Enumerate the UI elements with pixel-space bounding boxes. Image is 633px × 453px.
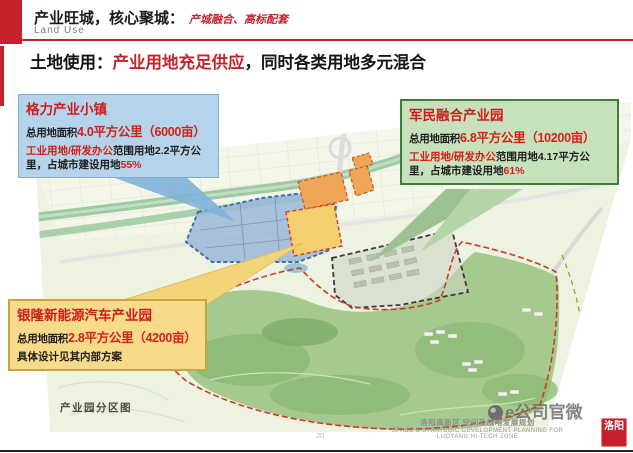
area-line: 总用地面积4.0平方公里（6000亩） xyxy=(26,121,211,143)
callout-junmin-park: 军民融合产业园 总用地面积6.8平方公里（10200亩） 工业用地/研发办公范围… xyxy=(400,99,619,185)
note-line: 具体设计见其内部方案 xyxy=(17,350,198,364)
callout-geli-industry-town: 格力产业小镇 总用地面积4.0平方公里（6000亩） 工业用地/研发办公范围用地… xyxy=(18,94,219,178)
page-number: 20 xyxy=(316,431,324,440)
area-line: 总用地面积2.8平方公里（4200亩） xyxy=(17,327,198,349)
bottom-divider xyxy=(0,450,633,452)
detail-line: 工业用地/研发办公范围用地4.17平方公里，占城市建设用地61% xyxy=(409,150,610,178)
area-line: 总用地面积6.8平方公里（10200亩） xyxy=(409,127,610,149)
camera-icon xyxy=(488,405,503,420)
callout-title: 银隆新能源汽车产业园 xyxy=(17,307,198,325)
watermark: e公司官微 xyxy=(488,398,582,423)
luoyang-seal-logo: 洛阳 xyxy=(601,418,627,447)
slide: 产业旺城，核心聚城：产城融合、高标配套 Land Use 土地使用：产业用地充足… xyxy=(0,0,633,453)
detail-line: 工业用地/研发办公范围用地2.2平方公里，占城市建设用地55% xyxy=(26,144,211,172)
watermark-text: e公司官微 xyxy=(505,403,582,422)
callout-yinlong-park: 银隆新能源汽车产业园 总用地面积2.8平方公里（4200亩） 具体设计见其内部方… xyxy=(8,299,207,371)
credit-english-2: LUOYANG HI-TECH ZONE xyxy=(355,434,600,440)
planning-map xyxy=(0,0,633,453)
callout-title: 格力产业小镇 xyxy=(26,101,211,119)
callout-title: 军民融合产业园 xyxy=(409,107,610,125)
map-caption: 产业园分区图 xyxy=(60,400,132,415)
